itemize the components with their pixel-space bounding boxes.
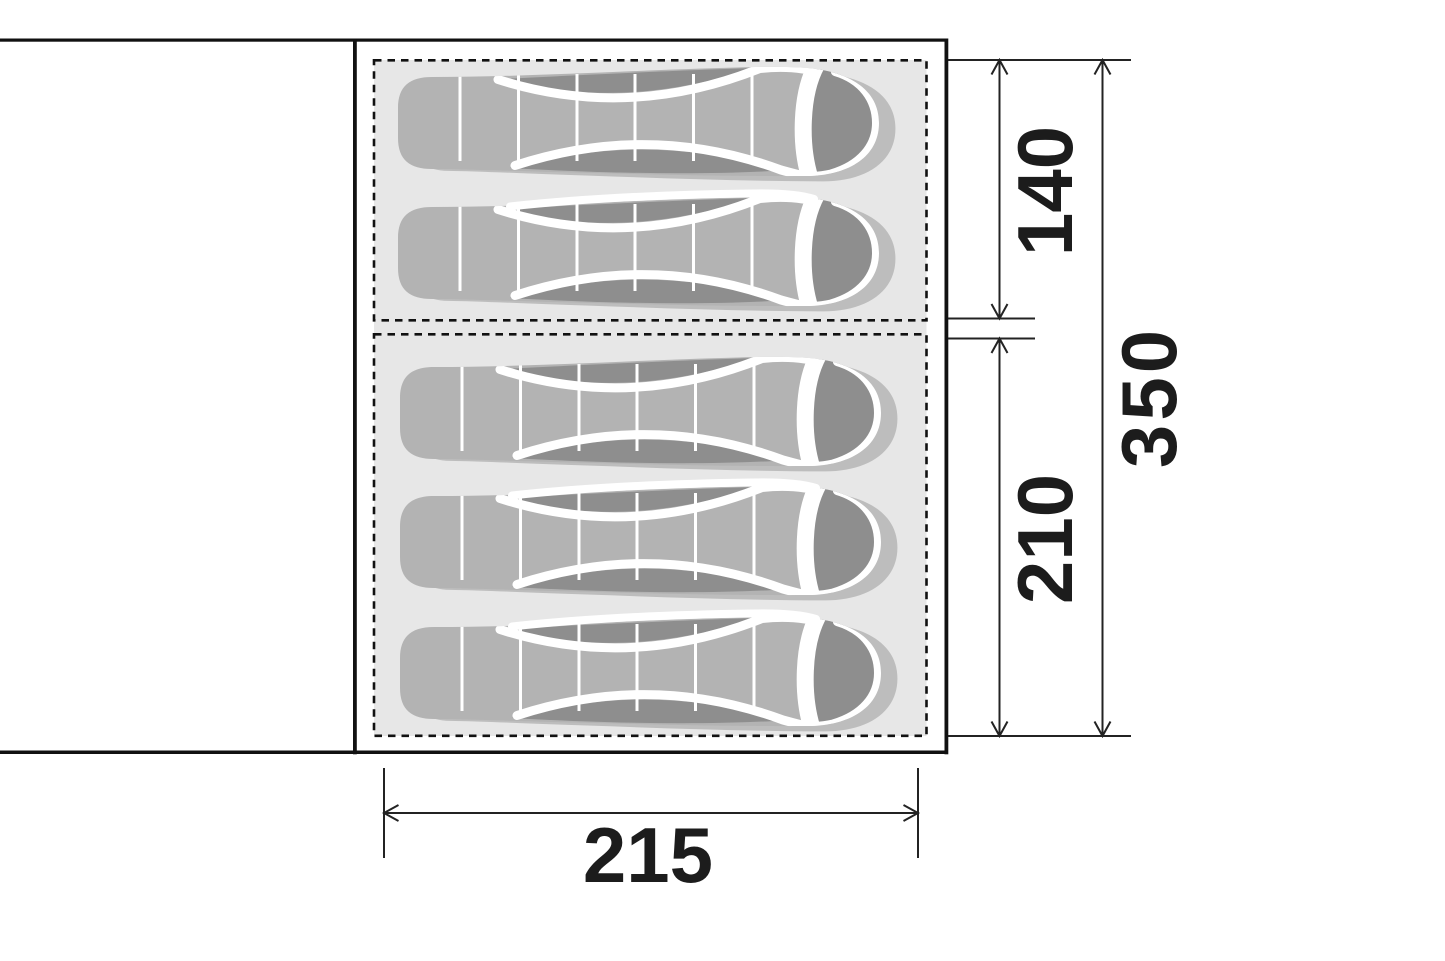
svg-text:215: 215 (583, 811, 713, 899)
svg-text:210: 210 (1001, 474, 1089, 604)
svg-text:350: 350 (1105, 326, 1193, 468)
svg-text:140: 140 (1001, 126, 1089, 256)
